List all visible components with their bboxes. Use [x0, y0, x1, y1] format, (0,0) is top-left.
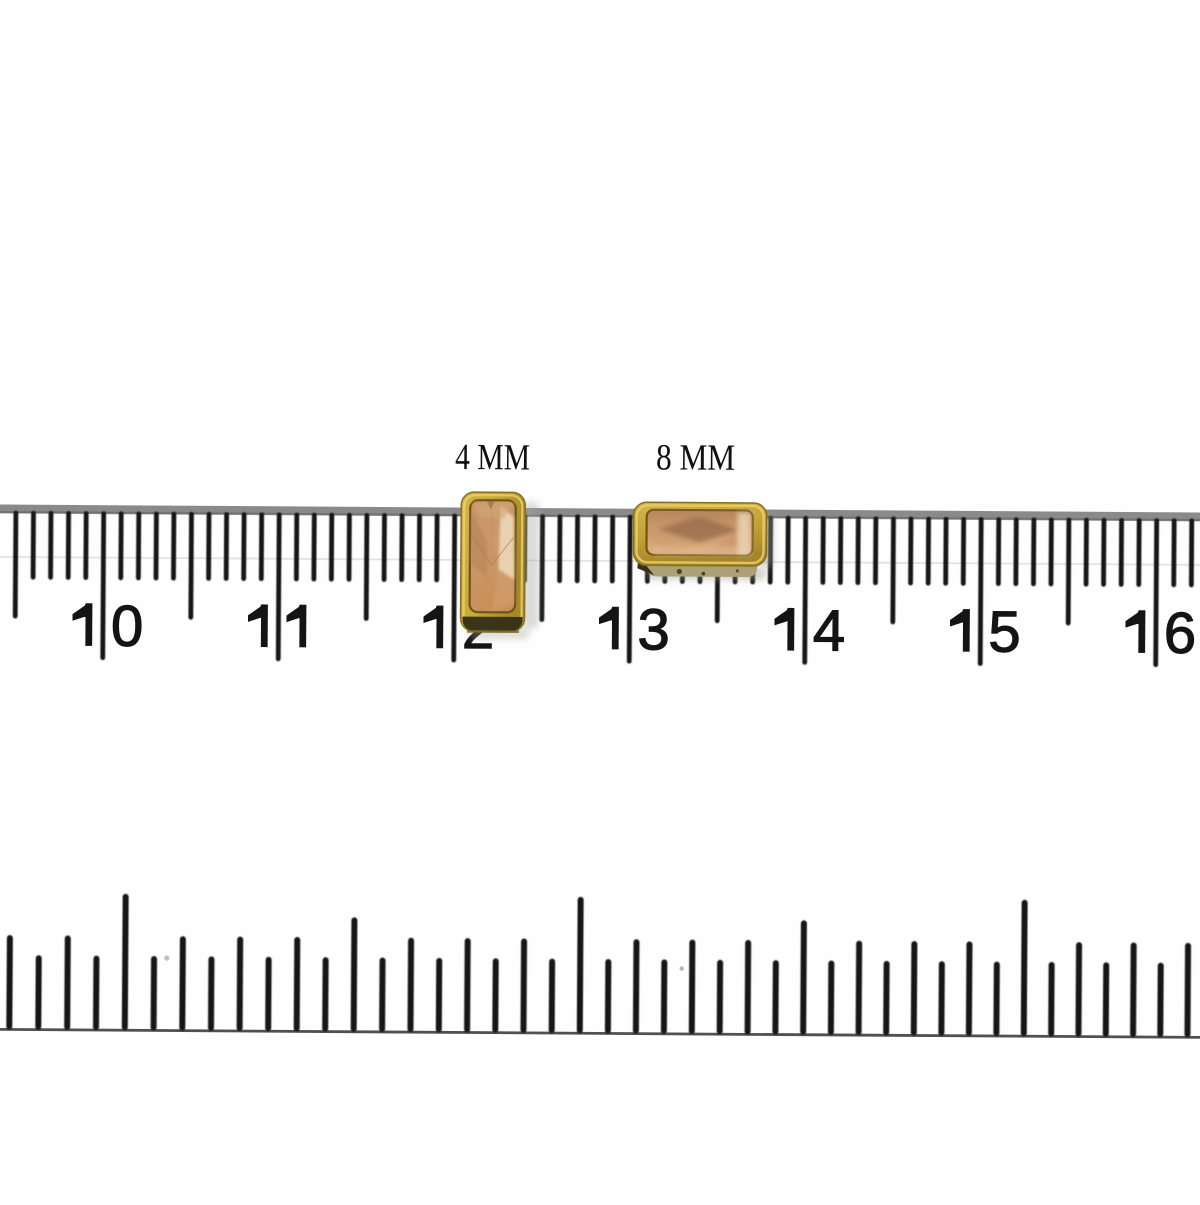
svg-text:6: 6	[1164, 601, 1197, 666]
svg-text:3: 3	[637, 597, 670, 662]
svg-text:4 MM: 4 MM	[455, 437, 530, 478]
svg-text:5: 5	[988, 600, 1021, 665]
svg-text:8 MM: 8 MM	[656, 437, 735, 479]
svg-text:0: 0	[111, 594, 144, 659]
svg-text:4: 4	[813, 598, 846, 663]
